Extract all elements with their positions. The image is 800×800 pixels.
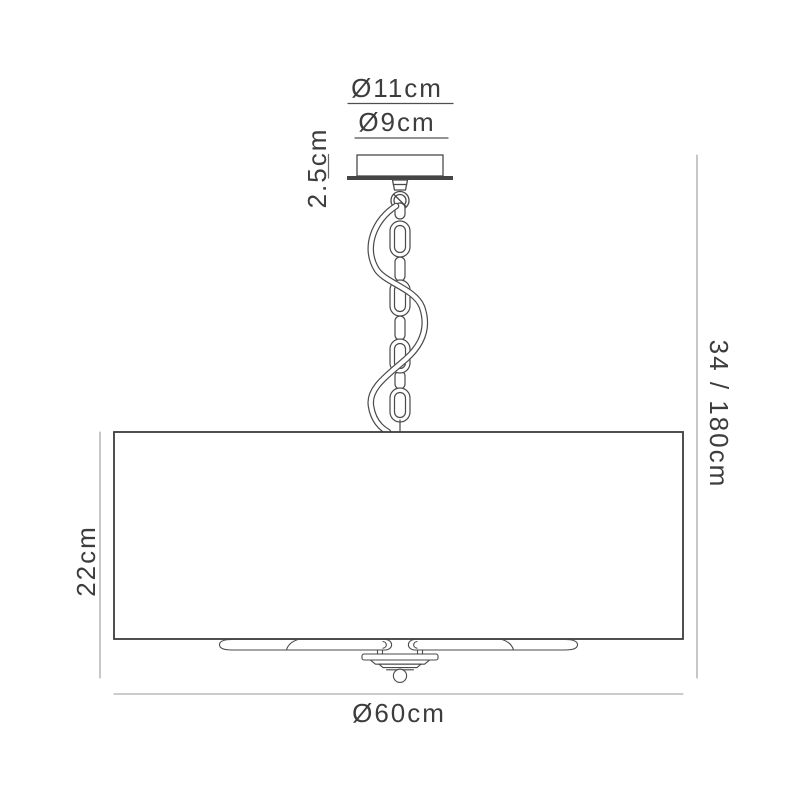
drum-shade bbox=[114, 432, 683, 639]
arm-seam bbox=[502, 640, 514, 651]
arm-connectors bbox=[378, 650, 423, 654]
lamp-arms bbox=[220, 640, 578, 655]
ceiling-canopy bbox=[347, 155, 453, 210]
label-suspension-drop: 34 / 180cm bbox=[705, 334, 733, 494]
canopy-body bbox=[357, 155, 443, 176]
finial-disc bbox=[371, 660, 430, 664]
label-shade-diameter: Ø60cm bbox=[299, 699, 499, 727]
arm-seam bbox=[287, 640, 299, 651]
label-canopy-height: 2.5cm bbox=[303, 123, 331, 213]
label-canopy-outer-diameter: Ø11cm bbox=[297, 74, 497, 102]
finial bbox=[362, 654, 438, 682]
finial-ball bbox=[393, 669, 406, 682]
left-arm bbox=[220, 640, 387, 651]
suspension-chain bbox=[390, 203, 410, 432]
chain-link-small bbox=[395, 371, 405, 389]
chain-link-large bbox=[390, 221, 410, 257]
chain-link-small bbox=[395, 316, 405, 340]
finial-plate bbox=[362, 654, 438, 660]
label-shade-height: 22cm bbox=[72, 516, 100, 606]
finial-disc bbox=[379, 664, 421, 667]
chain-link-large bbox=[390, 388, 410, 422]
chain-link-small bbox=[395, 257, 405, 281]
dimension-diagram: Ø11cm Ø9cm 2.5cm 22cm 34 / 180cm Ø60cm bbox=[0, 0, 800, 800]
right-arm bbox=[414, 640, 578, 651]
